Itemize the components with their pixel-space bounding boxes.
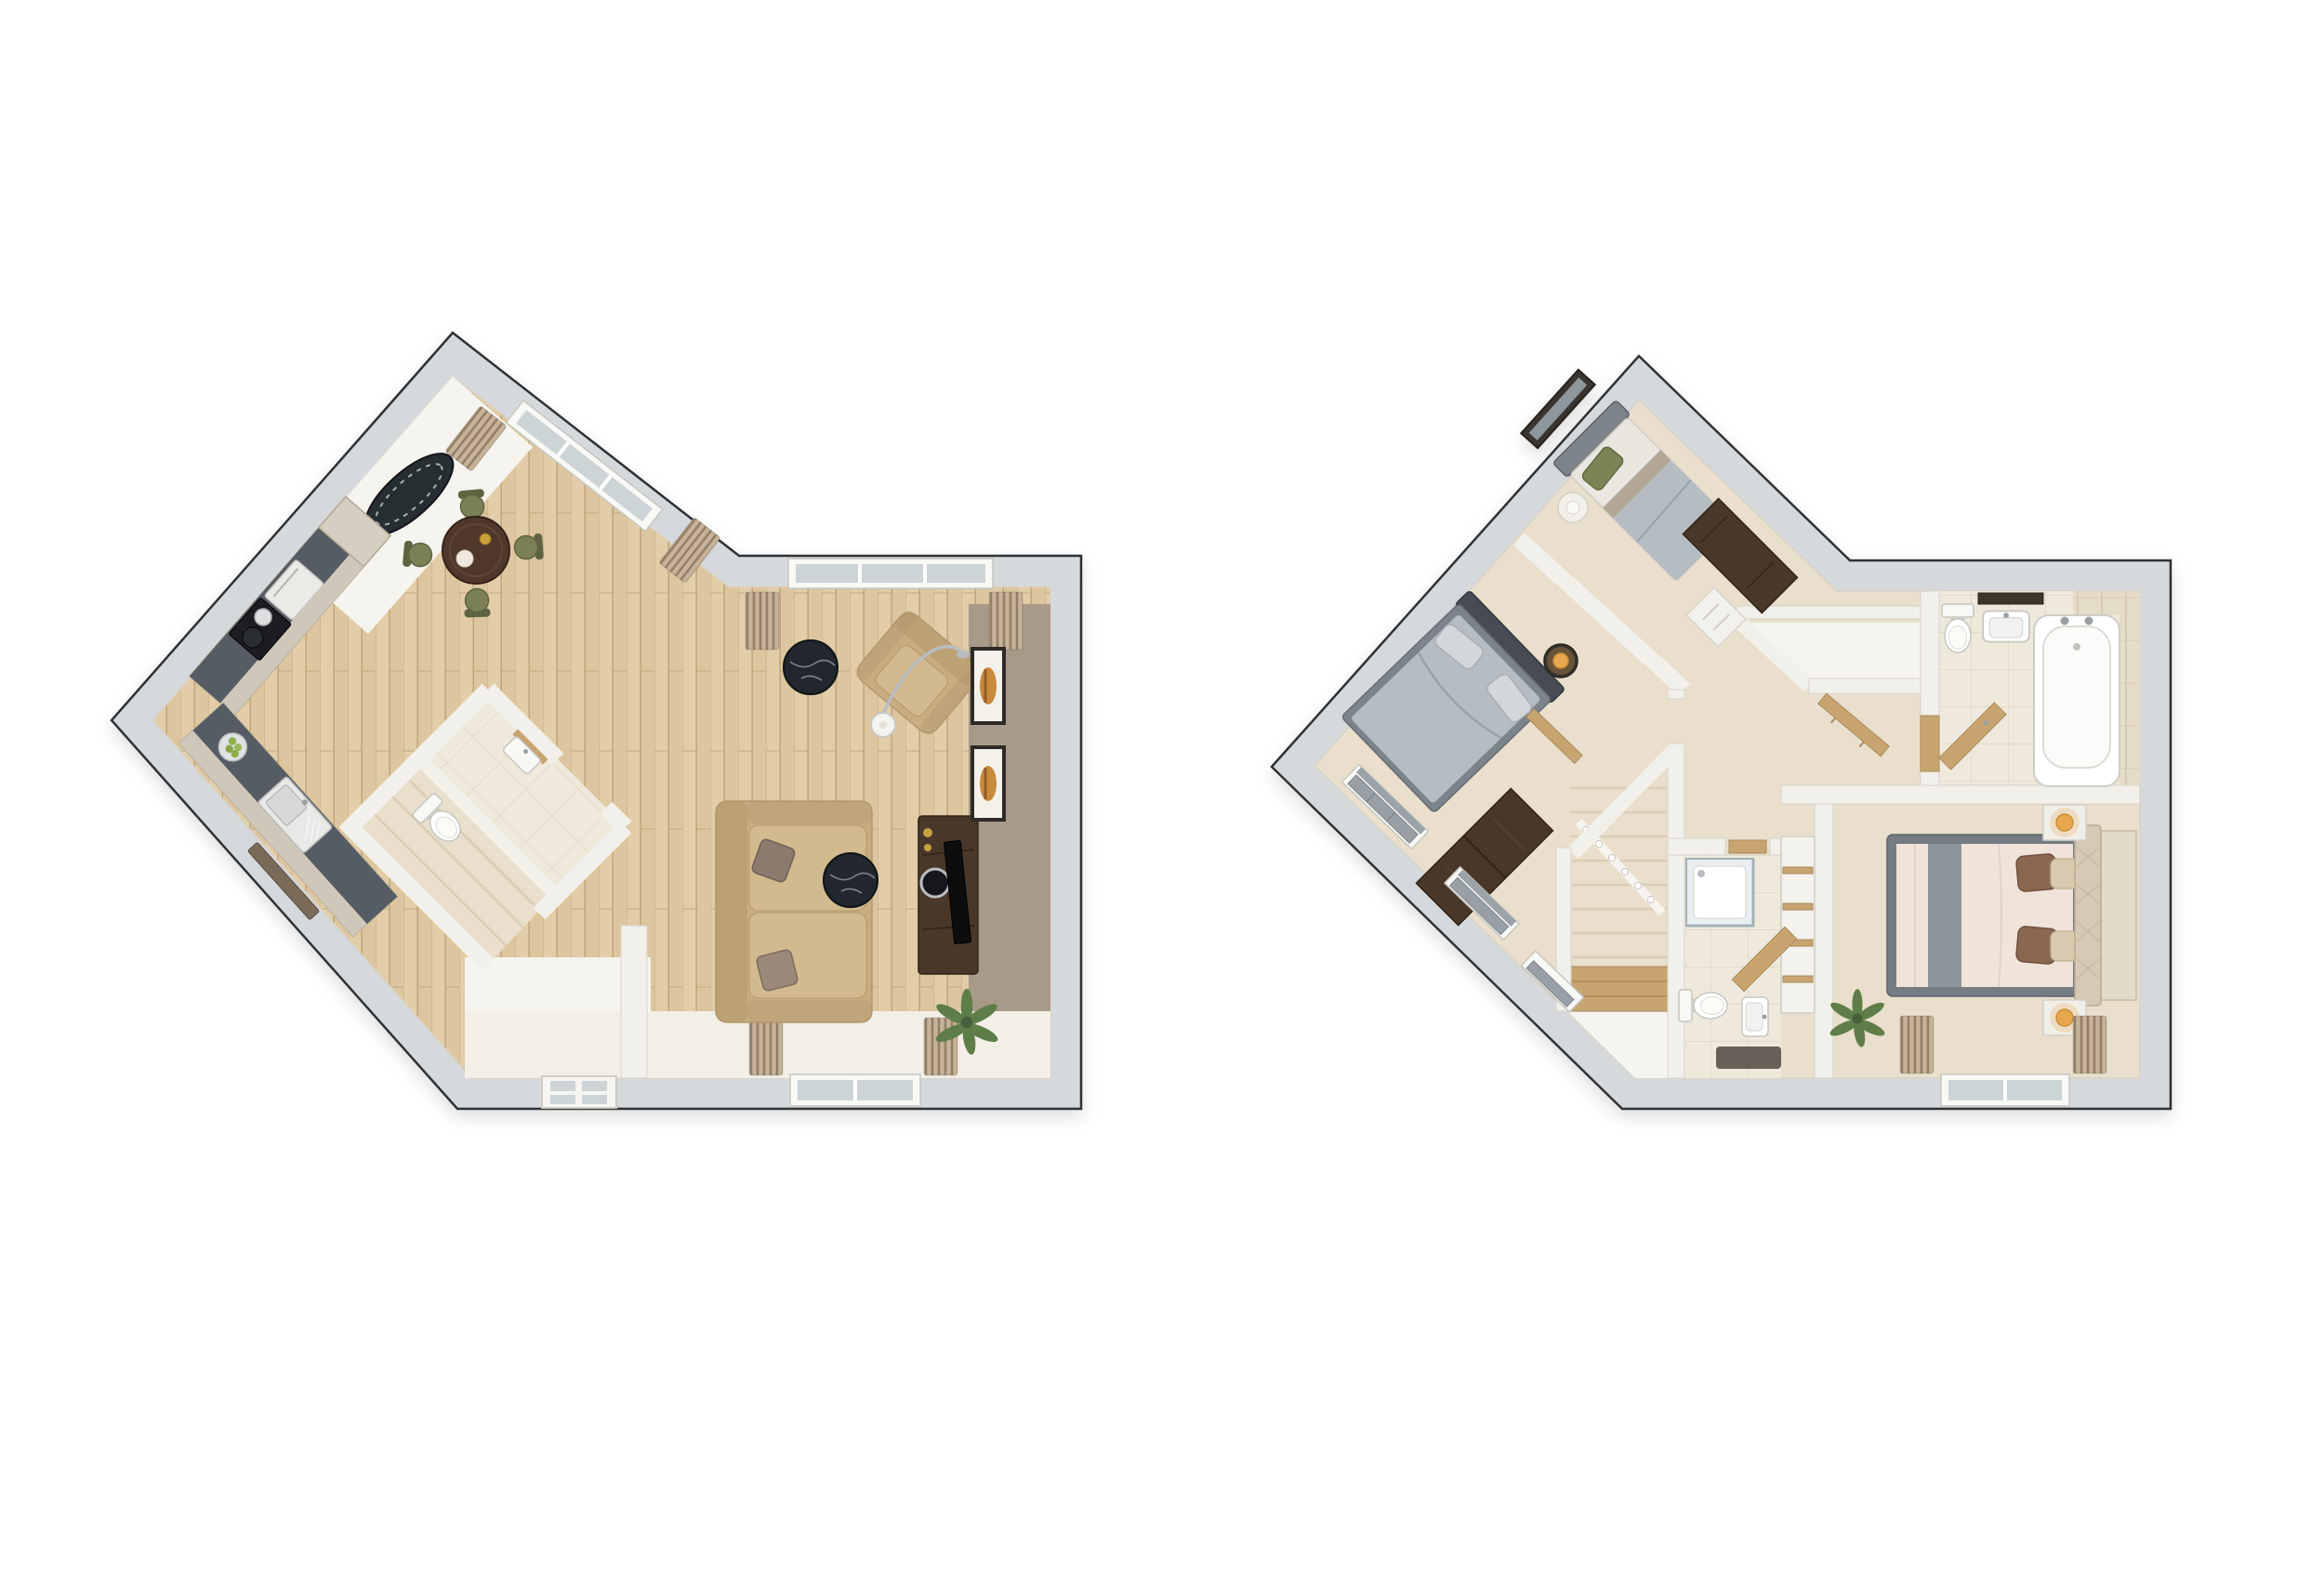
wash-basin xyxy=(1742,997,1768,1036)
curtain xyxy=(2073,1016,2106,1073)
coffee-table xyxy=(784,640,838,694)
shower xyxy=(1686,859,1753,926)
bed-runner xyxy=(1928,844,1961,987)
master-bed xyxy=(1887,825,2101,1006)
table-lamp xyxy=(1553,653,1568,668)
floor-plans-svg xyxy=(0,0,2324,1580)
ensuite-door-threshold xyxy=(1729,840,1766,853)
bath xyxy=(2034,615,2119,786)
toilet xyxy=(1679,990,1727,1021)
living-bottom-window xyxy=(790,1074,920,1106)
front-door xyxy=(542,1076,616,1108)
sofa xyxy=(716,801,872,1022)
ground-floor-plan xyxy=(112,333,1081,1109)
toilet xyxy=(1942,604,1974,652)
curtain xyxy=(749,1018,783,1075)
tv-unit xyxy=(918,816,978,974)
curtain xyxy=(989,592,1023,650)
stair-bottom-treads xyxy=(1571,967,1668,1011)
table-lamp xyxy=(2056,814,2073,831)
wash-basin xyxy=(1983,611,2029,641)
bedside-table xyxy=(1544,644,1578,678)
table-lamp xyxy=(2056,1009,2073,1026)
curtain xyxy=(1900,1016,1934,1073)
bedside-table xyxy=(1558,493,1588,522)
floor-plan-canvas xyxy=(0,0,2324,1580)
airing-cupboard xyxy=(1781,836,1815,1013)
rug xyxy=(2101,831,2136,1000)
curtain xyxy=(746,592,779,650)
living-top-window xyxy=(788,559,993,588)
shelf xyxy=(1978,593,2043,604)
coffee-table xyxy=(824,853,878,907)
speaker xyxy=(921,869,949,897)
first-floor-plan xyxy=(1272,356,2171,1109)
headboard xyxy=(2075,825,2101,1006)
hall-wall xyxy=(621,926,647,1078)
bath-mat xyxy=(1716,1047,1781,1069)
bathroom-door-threshold xyxy=(1921,716,1939,771)
master-window xyxy=(1941,1074,2069,1106)
nightstand xyxy=(2043,805,2086,840)
wall-art xyxy=(972,747,1004,820)
tiled-wall xyxy=(2073,591,2140,615)
dining-table xyxy=(442,517,509,584)
wall-art xyxy=(972,649,1004,723)
tiled-wall xyxy=(2119,591,2140,785)
dining-chair xyxy=(464,588,491,617)
cushion xyxy=(756,949,799,992)
